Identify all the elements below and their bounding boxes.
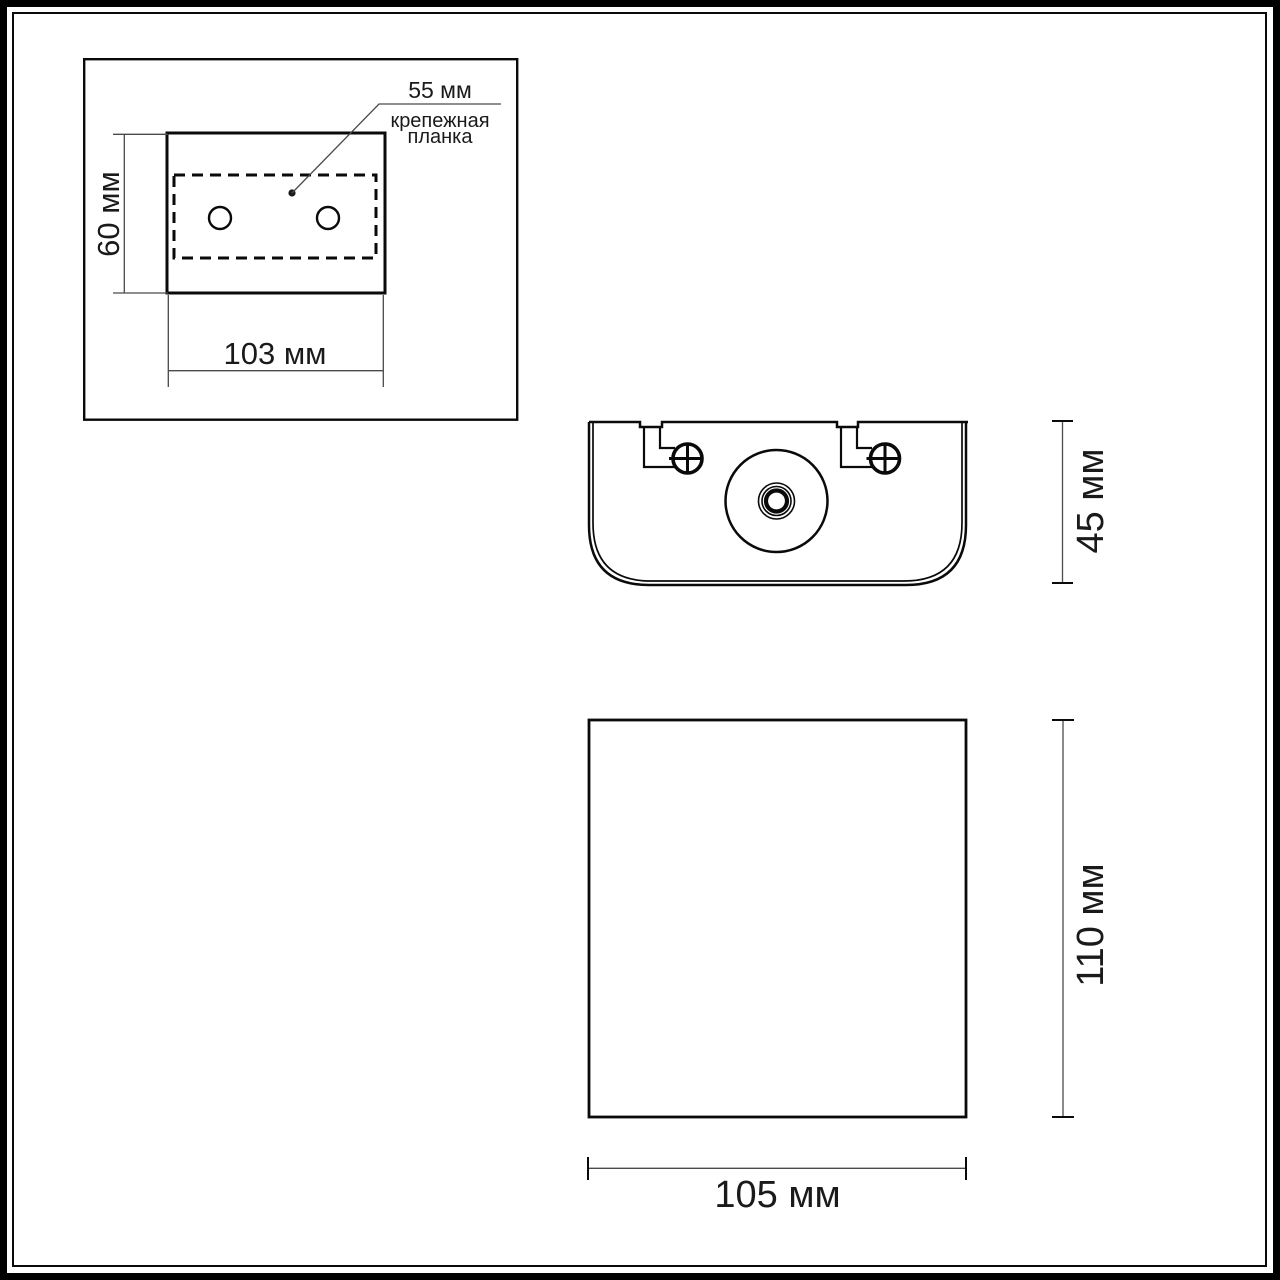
dimension-45mm-label: 45 мм (1070, 448, 1112, 553)
screw-hole-left (209, 207, 231, 229)
front-view: 110 мм 105 мм (570, 700, 1210, 1230)
back-plate-outline (167, 133, 385, 293)
detail-view-inset: 60 мм 103 мм 55 мм крепежная планка (83, 58, 519, 421)
dimension-60mm-label: 60 мм (91, 171, 126, 257)
mounting-plate-dashed-outline (174, 175, 376, 258)
dimension-110mm-label: 110 мм (1070, 863, 1112, 986)
top-view: 45 мм (570, 405, 1130, 605)
body-outline-inner (593, 422, 962, 581)
dimension-45mm: 45 мм (1052, 421, 1112, 583)
mounting-plate-label-line2: планка (408, 126, 474, 148)
dimension-105mm: 105 мм (588, 1157, 966, 1216)
front-body-outline (589, 720, 966, 1117)
body-outline-outer (589, 422, 968, 585)
dimension-55mm-label: 55 мм (408, 77, 472, 103)
dimension-110mm: 110 мм (1052, 720, 1112, 1117)
dimension-105mm-label: 105 мм (714, 1174, 840, 1216)
dimension-60mm: 60 мм (91, 134, 168, 293)
dimension-103mm: 103 мм (168, 295, 383, 387)
screw-hole-right (317, 207, 339, 229)
dimension-103mm-label: 103 мм (224, 336, 327, 371)
cable-boss (726, 450, 828, 552)
